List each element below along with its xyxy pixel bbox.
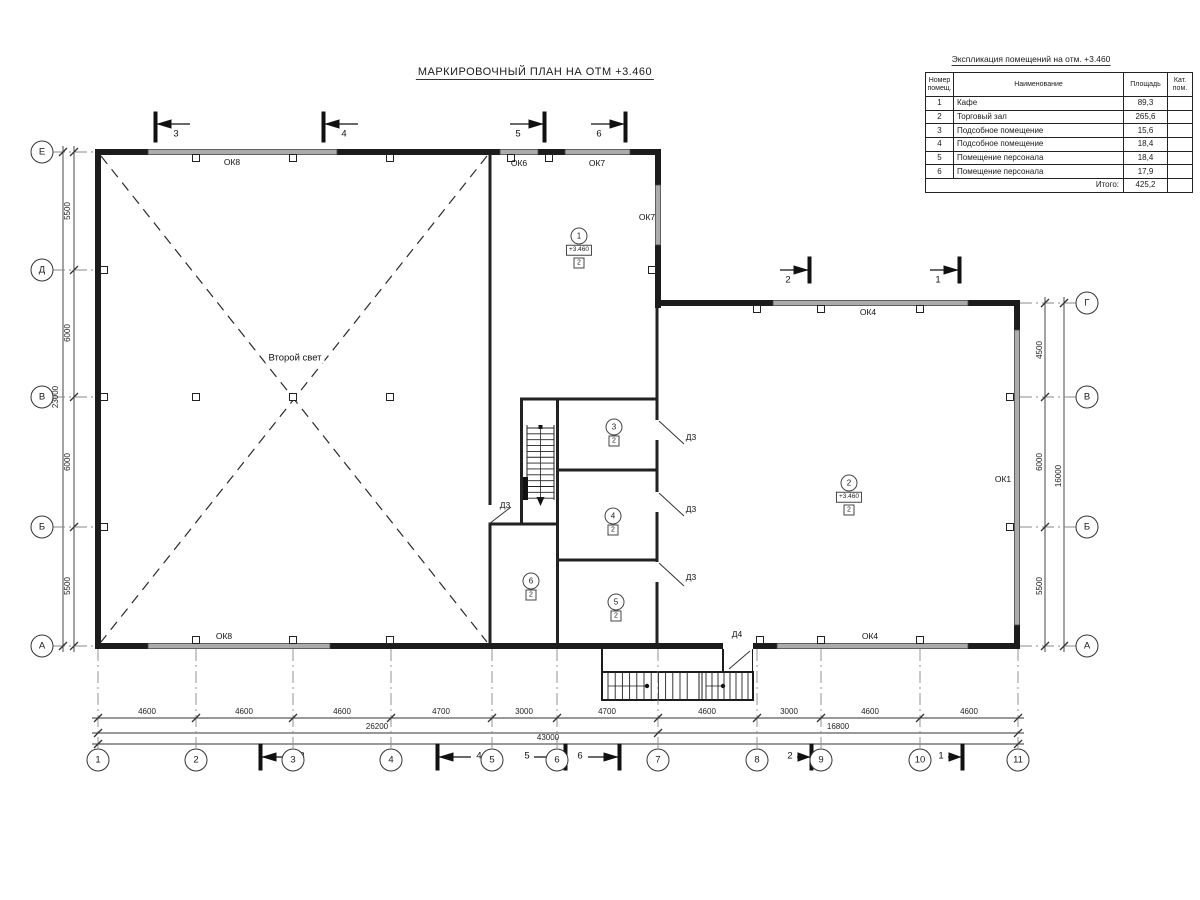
plan-label: 4600 (138, 708, 156, 716)
section-mark-4-top: 4 (341, 129, 346, 139)
axis-bubble-1: 1 (87, 749, 110, 772)
axis-bubble-Г: Г (1076, 292, 1099, 315)
window-label-ok4-bottom: ОК4 (862, 632, 878, 641)
column-square (193, 394, 200, 401)
generated-shapes (53, 148, 1076, 748)
door-label-d3-room4: Д3 (686, 505, 696, 514)
cell-name: Торговый зал (954, 111, 1124, 125)
room-number-4: 4 (605, 508, 622, 525)
door-label-d3-room3: Д3 (686, 433, 696, 442)
plan-label: 6000 (64, 324, 72, 342)
cell-name: Помещение персонала (954, 165, 1124, 179)
door-swings (489, 421, 750, 669)
window-label-ok6: ОК6 (511, 159, 527, 168)
axis-bubble-6: 6 (546, 749, 569, 772)
plan-label: 4700 (598, 708, 616, 716)
plan-label: 26200 (366, 723, 388, 731)
window-ok8-top (148, 150, 337, 155)
axis-bubble-11: 11 (1007, 749, 1030, 772)
column-square (387, 155, 394, 162)
window-label-ok8-bottom: ОК8 (216, 632, 232, 641)
plan-label: 4600 (861, 708, 879, 716)
total-label: Итого: (926, 179, 1124, 192)
dimension-lines (63, 146, 1064, 744)
door-label-d3-room5: Д3 (686, 573, 696, 582)
cell-area: 18,4 (1124, 152, 1168, 166)
column-square (101, 394, 108, 401)
plan-label: 5500 (64, 577, 72, 595)
axis-bubble-4: 4 (380, 749, 403, 772)
room-number-2: 2 (841, 475, 858, 492)
axis-bubble-Б: Б (31, 516, 54, 539)
window-label-ok8-top: ОК8 (224, 158, 240, 167)
room-category: 2 (611, 611, 622, 622)
axis-bubble-Е: Е (31, 141, 54, 164)
cell-number: 2 (926, 111, 954, 125)
room-category: 2 (526, 590, 537, 601)
axis-bubble-3: 3 (282, 749, 305, 772)
window-label-ok7-top: ОК7 (589, 159, 605, 168)
col-header-area: Площадь (1124, 73, 1168, 97)
plan-label: 4500 (1036, 341, 1044, 359)
cell-number: 4 (926, 138, 954, 152)
room-number-1: 1 (571, 228, 588, 245)
axis-bubble-Б: Б (1076, 516, 1099, 539)
window-ok6 (500, 150, 538, 155)
stair-icon (523, 425, 554, 506)
section-mark-5-top: 5 (515, 129, 520, 139)
cell-area: 15,6 (1124, 124, 1168, 138)
explication-title: Экспликация помещений на отм. +3.460 (952, 54, 1111, 66)
total-value: 425,2 (1124, 179, 1168, 192)
room-number-5: 5 (608, 594, 625, 611)
section-mark-1-right: 1 (935, 275, 940, 285)
plan-label: 4600 (960, 708, 978, 716)
plan-label: 4600 (698, 708, 716, 716)
cell-category (1168, 111, 1192, 125)
column-square (754, 306, 761, 313)
room-elevation: +3.460 (566, 245, 592, 256)
window-ok4-top (773, 301, 968, 306)
section-mark-6-bottom: 6 (577, 751, 582, 761)
cell-category (1168, 179, 1192, 192)
plan-label: 5500 (64, 202, 72, 220)
cell-name: Кафе (954, 97, 1124, 111)
door-d3-room5 (659, 563, 684, 586)
section-mark-1-bottom: 1 (938, 751, 943, 761)
column-square (290, 394, 297, 401)
cell-area: 18,4 (1124, 138, 1168, 152)
column-square (387, 394, 394, 401)
plan-label: 3000 (780, 708, 798, 716)
column-square (101, 524, 108, 531)
axis-bubble-10: 10 (909, 749, 932, 772)
col-header-name: Наименование (954, 73, 1124, 97)
window-ok4-bottom (777, 644, 968, 649)
page-title: МАРКИРОВОЧНЫЙ ПЛАН НА ОТМ +3.460 (416, 66, 654, 80)
cell-area: 265,6 (1124, 111, 1168, 125)
second-light-label: Второй свет (265, 353, 324, 363)
column-square (290, 637, 297, 644)
column-square (818, 637, 825, 644)
axis-bubble-2: 2 (185, 749, 208, 772)
room-elevation: +3.460 (836, 492, 862, 503)
room-category: 2 (608, 525, 619, 536)
axis-bubble-5: 5 (481, 749, 504, 772)
axis-bubble-В: В (1076, 386, 1099, 409)
column-square (101, 267, 108, 274)
axis-bubble-9: 9 (810, 749, 833, 772)
column-square (917, 306, 924, 313)
floor-plan-page: МАРКИРОВОЧНЫЙ ПЛАН НА ОТМ +3.460 Эксплик… (0, 0, 1200, 900)
door-label-d4: Д4 (732, 630, 742, 639)
column-square (917, 637, 924, 644)
axis-bubble-7: 7 (647, 749, 670, 772)
door-label-d3-hall: Д3 (500, 501, 510, 510)
axis-bubble-А: А (31, 635, 54, 658)
column-square (757, 637, 764, 644)
plan-label: 6000 (64, 453, 72, 471)
room-number-6: 6 (523, 573, 540, 590)
section-mark-5-bottom: 5 (524, 751, 529, 761)
axis-bubble-В: В (31, 386, 54, 409)
room-category: 2 (609, 436, 620, 447)
cell-number: 3 (926, 124, 954, 138)
axis-bubble-8: 8 (746, 749, 769, 772)
window-ok8-bottom (148, 644, 330, 649)
room-number-3: 3 (606, 419, 623, 436)
window-label-ok4-top: ОК4 (860, 308, 876, 317)
column-square (546, 155, 553, 162)
explication-table: Номер помещ.НаименованиеПлощадьКат. пом.… (925, 72, 1193, 193)
axis-bubble-А: А (1076, 635, 1099, 658)
section-mark-3-top: 3 (173, 129, 178, 139)
section-mark-2-bottom: 2 (787, 751, 792, 761)
cell-name: Помещение персонала (954, 152, 1124, 166)
plan-label: 16800 (827, 723, 849, 731)
door-d3-room4 (659, 493, 684, 516)
cell-category (1168, 152, 1192, 166)
plan-label: 3000 (515, 708, 533, 716)
cell-area: 89,3 (1124, 97, 1168, 111)
cell-category (1168, 138, 1192, 152)
section-mark-6-top: 6 (596, 129, 601, 139)
cell-number: 5 (926, 152, 954, 166)
plan-label: 43000 (537, 734, 559, 742)
plan-label: 6000 (1036, 453, 1044, 471)
column-square (1007, 394, 1014, 401)
section-mark-2-right: 2 (785, 275, 790, 285)
window-label-ok7-right: ОК7 (639, 213, 655, 222)
plan-label: 4600 (333, 708, 351, 716)
room-category: 2 (574, 258, 585, 269)
door-d3-room3 (659, 421, 684, 444)
col-header-number: Номер помещ. (926, 73, 954, 97)
cell-area: 17,9 (1124, 165, 1168, 179)
column-square (290, 155, 297, 162)
col-header-category: Кат. пом. (1168, 73, 1192, 97)
window-ok7-top (565, 150, 630, 155)
window-label-ok1: ОК1 (995, 475, 1011, 484)
plan-label: 4600 (235, 708, 253, 716)
column-square (818, 306, 825, 313)
cell-category (1168, 124, 1192, 138)
cell-number: 6 (926, 165, 954, 179)
axis-bubble-Д: Д (31, 259, 54, 282)
column-square (387, 637, 394, 644)
door-d4 (729, 651, 750, 669)
plan-label: 16000 (1055, 465, 1063, 487)
cell-number: 1 (926, 97, 954, 111)
column-square (193, 155, 200, 162)
room-category: 2 (844, 505, 855, 516)
column-square (1007, 524, 1014, 531)
column-square (649, 267, 656, 274)
window-ok7-right (656, 185, 661, 245)
cell-category (1168, 165, 1192, 179)
column-square (193, 637, 200, 644)
plan-label: 4700 (432, 708, 450, 716)
plan-label: 5500 (1036, 577, 1044, 595)
cell-category (1168, 97, 1192, 111)
cell-name: Подсобное помещение (954, 124, 1124, 138)
window-ok1 (1015, 330, 1020, 625)
cell-name: Подсобное помещение (954, 138, 1124, 152)
